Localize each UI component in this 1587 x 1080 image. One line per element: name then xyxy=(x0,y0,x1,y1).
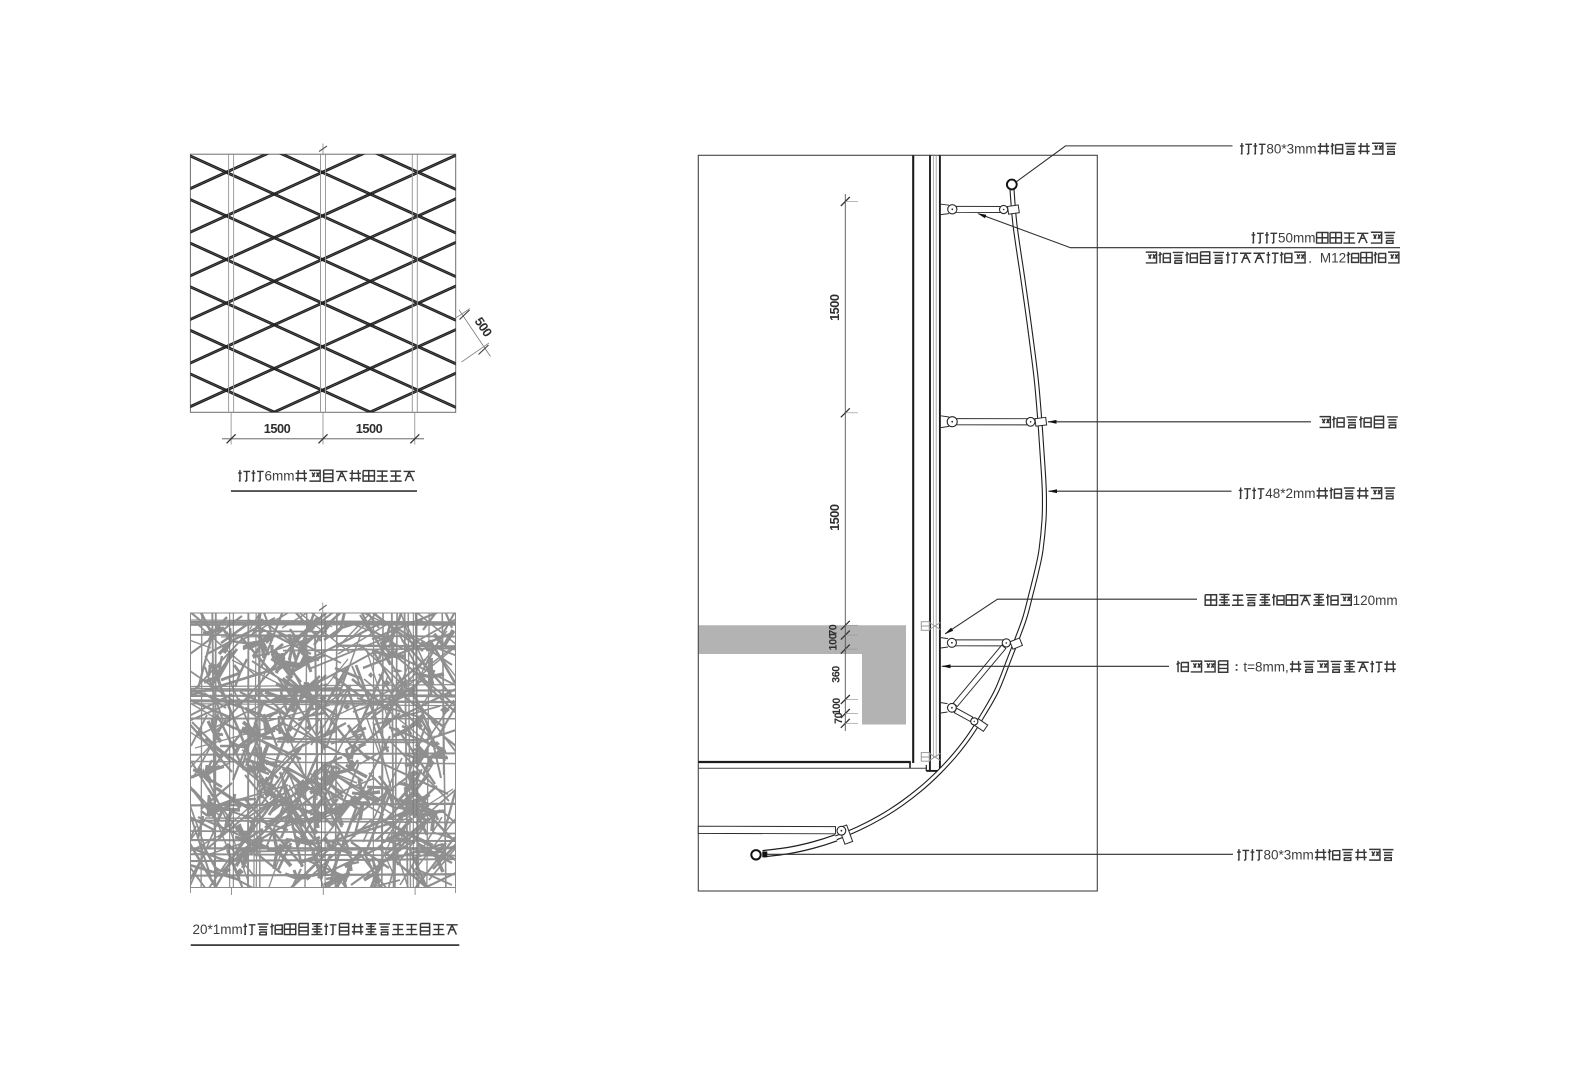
svg-text:6mm: 6mm xyxy=(265,469,295,484)
svg-text:80*3mm: 80*3mm xyxy=(1266,142,1316,157)
svg-text:1500: 1500 xyxy=(827,294,842,321)
svg-text:20*1mm: 20*1mm xyxy=(193,922,243,937)
svg-text:1500: 1500 xyxy=(264,421,291,436)
svg-text:50mm: 50mm xyxy=(1278,231,1316,246)
svg-text:70: 70 xyxy=(833,712,845,724)
svg-text:t=8mm,: t=8mm, xyxy=(1243,660,1288,675)
svg-text:360: 360 xyxy=(831,666,843,683)
svg-text:100: 100 xyxy=(831,698,843,715)
svg-text:M12: M12 xyxy=(1320,251,1346,266)
svg-text:1500: 1500 xyxy=(827,504,842,531)
svg-text:48*2mm: 48*2mm xyxy=(1265,486,1315,501)
svg-text:500: 500 xyxy=(472,314,496,339)
svg-text:100: 100 xyxy=(828,633,840,650)
svg-text:1500: 1500 xyxy=(356,421,383,436)
svg-text:80*3mm: 80*3mm xyxy=(1264,848,1314,863)
svg-text:120mm: 120mm xyxy=(1353,593,1398,608)
